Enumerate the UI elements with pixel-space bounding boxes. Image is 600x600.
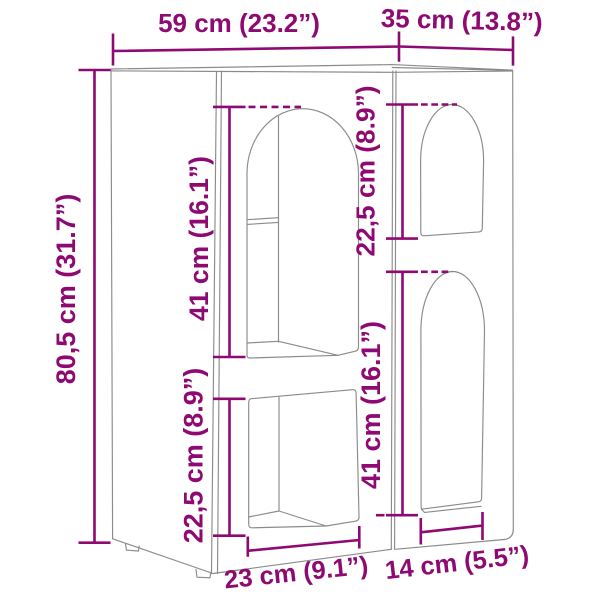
svg-text:59 cm (23.2”): 59 cm (23.2”) [158,8,320,38]
svg-text:22,5 cm (8.9”): 22,5 cm (8.9”) [179,368,209,544]
svg-text:22,5 cm (8.9”): 22,5 cm (8.9”) [351,85,381,256]
svg-text:41 cm (16.1”): 41 cm (16.1”) [356,321,386,489]
svg-text:35 cm (13.8”): 35 cm (13.8”) [380,3,543,37]
svg-text:41 cm (16.1”): 41 cm (16.1”) [184,156,214,321]
svg-text:80,5 cm (31.7”): 80,5 cm (31.7”) [51,194,81,385]
